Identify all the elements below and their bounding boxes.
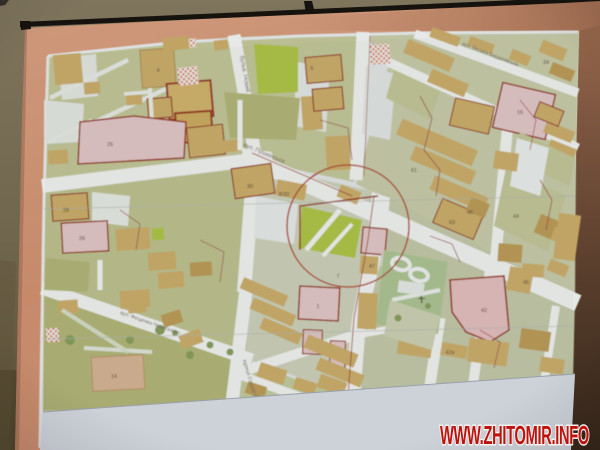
svg-text:WWW.ZHITOMIR.INFO: WWW.ZHITOMIR.INFO (440, 420, 589, 450)
